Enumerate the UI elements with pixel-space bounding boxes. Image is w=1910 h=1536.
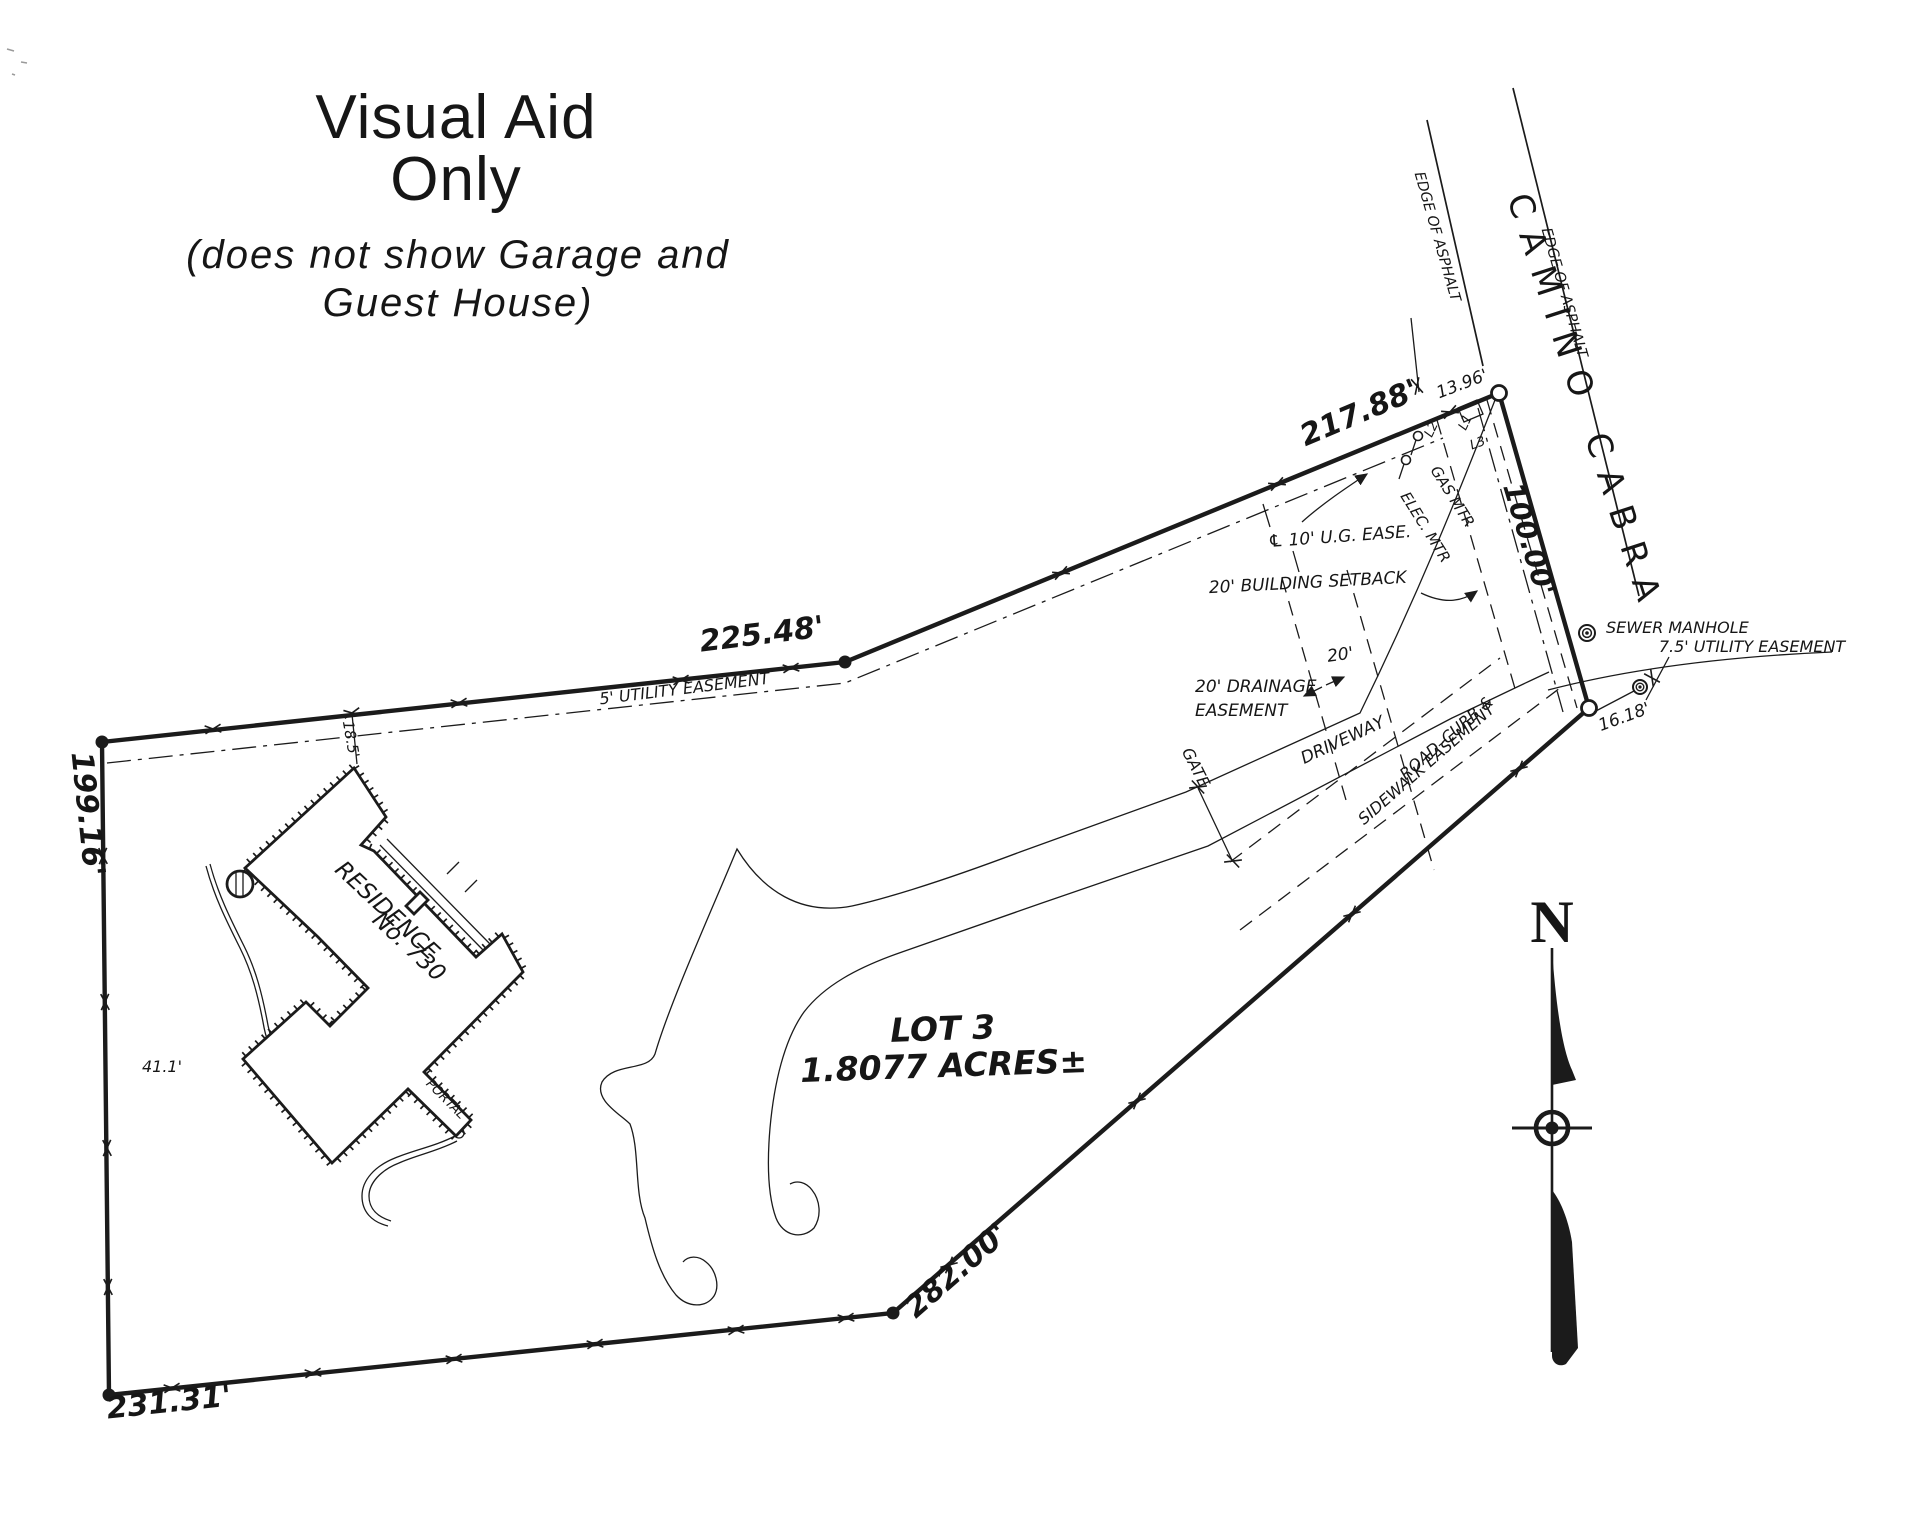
plat-page: Visual Aid Only (does not show Garage an… xyxy=(0,0,1910,1536)
turret xyxy=(227,871,253,897)
corner-dot-north-bend xyxy=(839,656,852,669)
corner-dot-west xyxy=(96,736,109,749)
lot-number-label: LOT 3 xyxy=(890,1007,996,1050)
drainage-label-line-1: 20' DRAINAGE xyxy=(1195,677,1317,697)
north-letter: N xyxy=(1530,889,1573,955)
paper-background xyxy=(0,0,1910,1536)
dim-house-west: 41.1' xyxy=(142,1057,182,1076)
subtitle-line-1: (does not show Garage and xyxy=(186,233,730,277)
corner-circle-east xyxy=(1582,701,1597,716)
sewer-manhole-label: SEWER MANHOLE xyxy=(1606,618,1750,637)
title-line-2: Only xyxy=(390,145,521,214)
drainage-width-label: 20' xyxy=(1326,643,1355,666)
survey-plat-drawing: Visual Aid Only (does not show Garage an… xyxy=(0,0,1910,1536)
corner-dot-south xyxy=(887,1307,900,1320)
corner-circle-northeast xyxy=(1492,386,1507,401)
drainage-label-line-2: EASEMENT xyxy=(1195,701,1289,721)
title-line-1: Visual Aid xyxy=(315,83,596,152)
subtitle-line-2: Guest House) xyxy=(323,281,594,325)
